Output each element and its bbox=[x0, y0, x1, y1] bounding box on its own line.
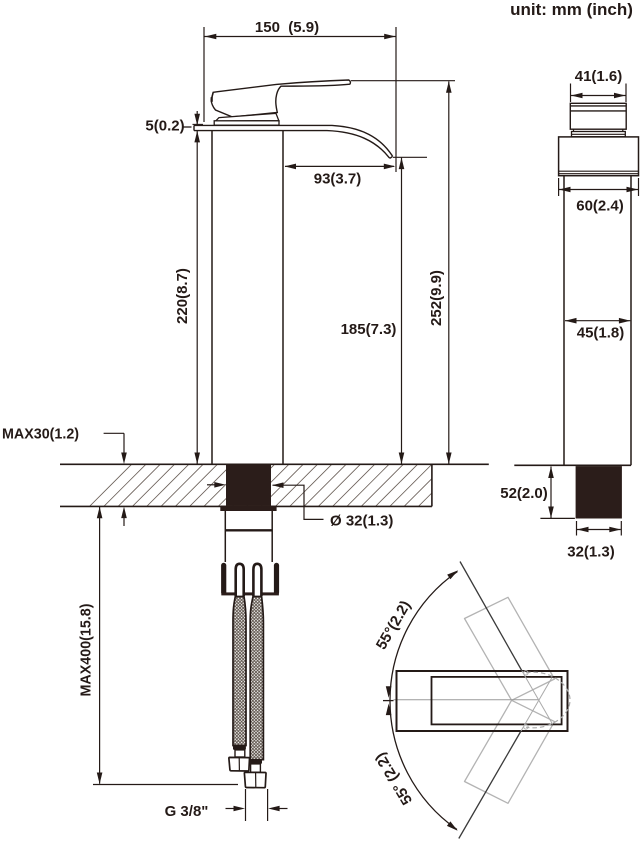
svg-text:220(8.7): 220(8.7) bbox=[174, 268, 191, 324]
svg-text:MAX30(1.2): MAX30(1.2) bbox=[2, 427, 79, 443]
svg-text:41(1.6): 41(1.6) bbox=[575, 68, 623, 85]
svg-text:G 3/8": G 3/8" bbox=[165, 803, 209, 820]
svg-text:unit: mm (inch): unit: mm (inch) bbox=[510, 0, 633, 19]
svg-text:Ø 32(1.3): Ø 32(1.3) bbox=[330, 513, 393, 530]
svg-text:93(3.7): 93(3.7) bbox=[314, 171, 362, 188]
svg-text:5(0.2): 5(0.2) bbox=[145, 118, 184, 135]
svg-text:MAX400(15.8): MAX400(15.8) bbox=[79, 603, 95, 696]
svg-text:52(2.0): 52(2.0) bbox=[500, 485, 548, 502]
svg-text:45(1.8): 45(1.8) bbox=[577, 325, 625, 342]
svg-text:32(1.3): 32(1.3) bbox=[567, 544, 615, 561]
svg-text:252(9.9): 252(9.9) bbox=[428, 270, 445, 326]
svg-text:150 (5.9): 150 (5.9) bbox=[255, 19, 319, 36]
svg-text:60(2.4): 60(2.4) bbox=[576, 197, 624, 214]
svg-text:185(7.3): 185(7.3) bbox=[341, 321, 397, 338]
